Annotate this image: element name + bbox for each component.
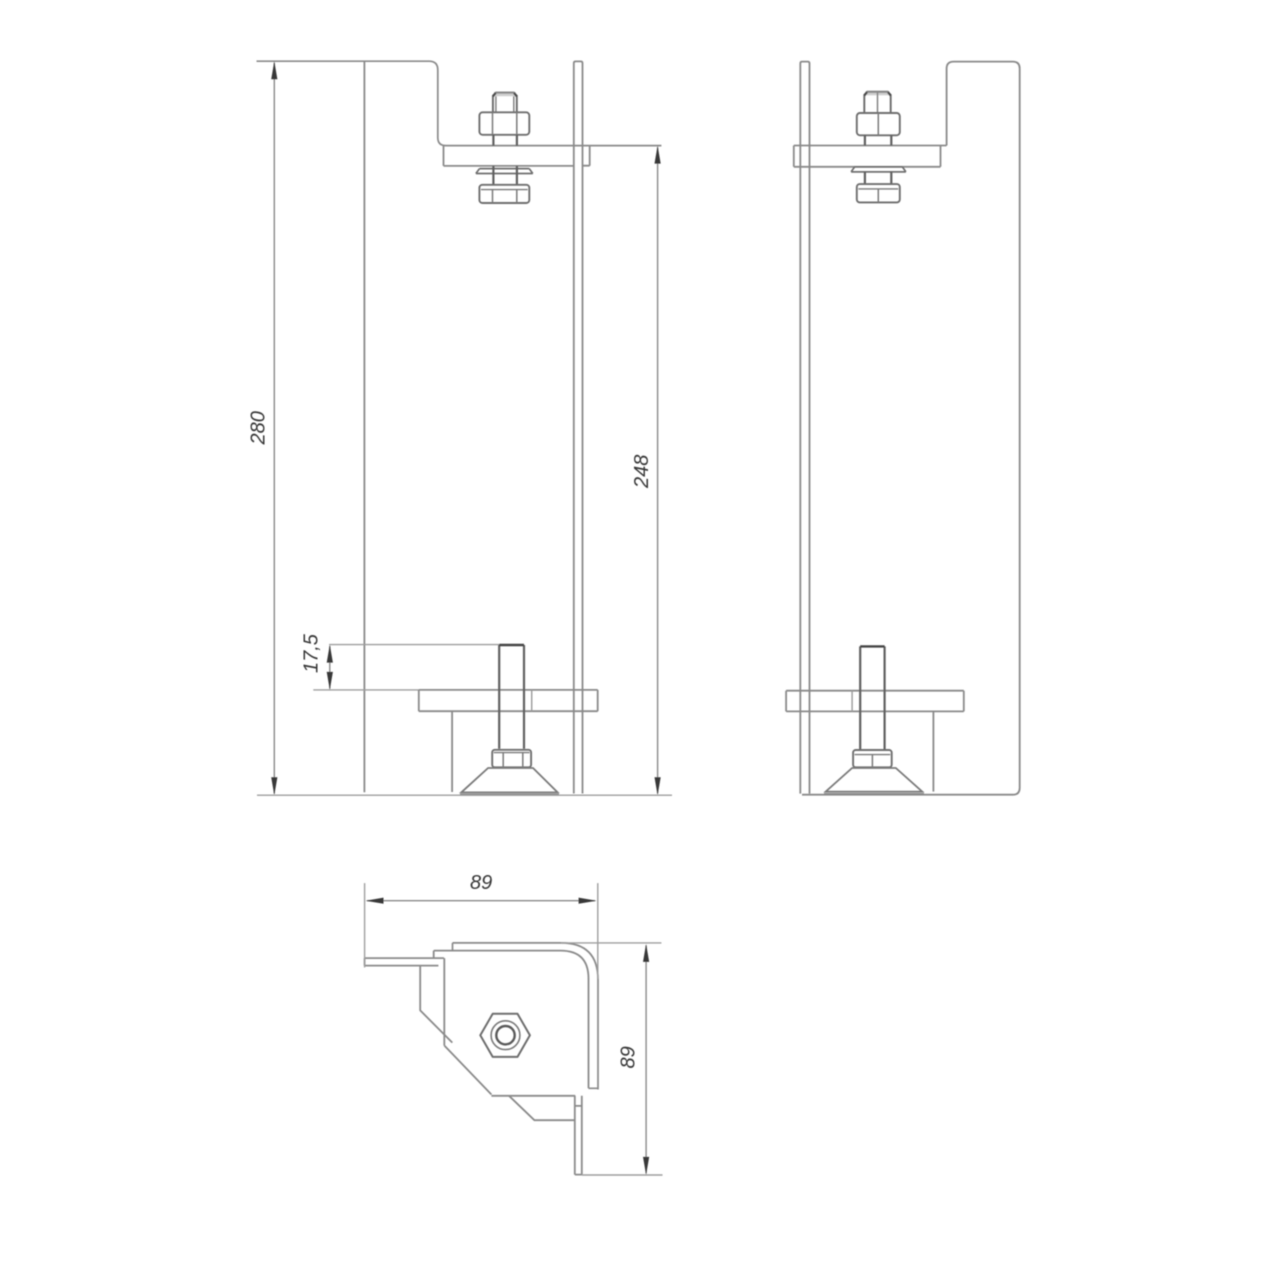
svg-text:89: 89 (470, 872, 492, 894)
svg-text:248: 248 (631, 455, 653, 489)
svg-text:89: 89 (618, 1046, 640, 1068)
svg-text:17,5: 17,5 (301, 633, 323, 673)
svg-text:280: 280 (248, 411, 270, 445)
